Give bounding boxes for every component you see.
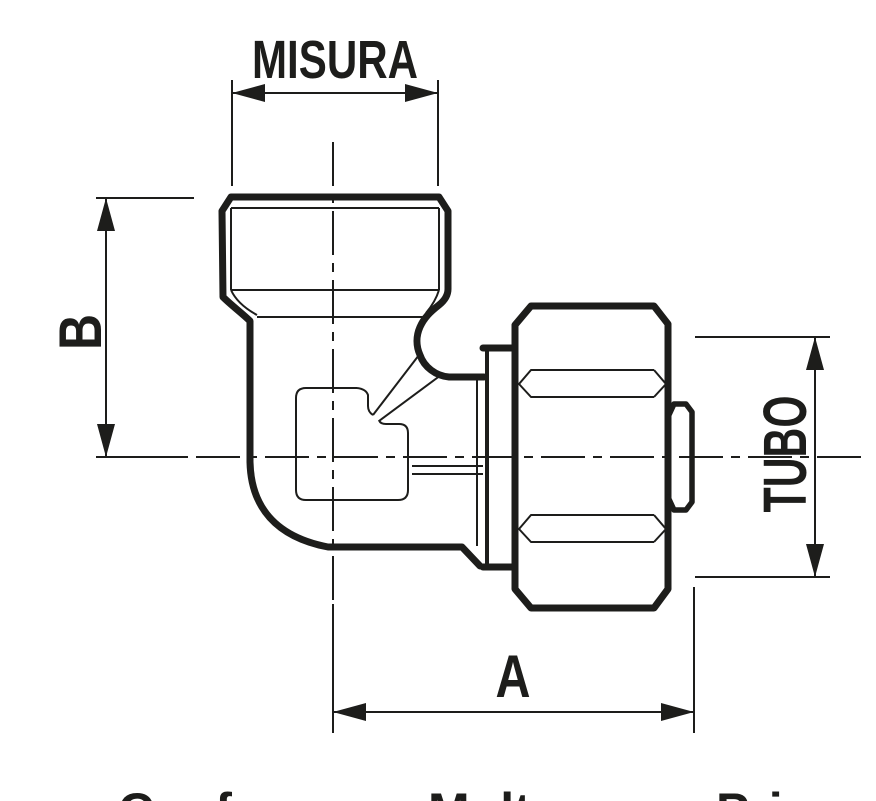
funnel-line-lower [379,375,441,421]
dim-label-misura: MISURA [252,30,418,90]
dimension-misura: MISURA [232,30,438,186]
funnel-line-upper [373,355,419,415]
a-arrow-right-icon [661,703,694,721]
cropped-text-col1: Conf [118,783,232,801]
elbow-body-outline [222,197,484,566]
bore-notch [357,388,373,415]
cropped-text-col2: Mult [428,783,531,801]
dim-label-b: B [47,314,114,350]
nut-facet-bottom [519,515,666,542]
tubo-arrow-up-icon [806,337,824,370]
nut-facet-top [519,370,666,397]
tubo-arrow-down-icon [806,544,824,577]
drawing-canvas: MISURA B TUBO A [0,0,876,801]
dimension-b: B [47,198,194,457]
dim-label-a: A [496,643,531,710]
technical-drawing-svg: MISURA B TUBO A [0,0,876,801]
b-arrow-down-icon [97,424,115,457]
bore-outline [296,388,408,500]
dim-label-tubo: TUBO [751,396,819,513]
bottom-cropped-text-row: Conf Mult Pri [118,783,783,801]
b-arrow-up-icon [97,198,115,231]
centerlines [196,142,868,602]
fitting-outline [222,197,692,608]
cropped-text-col3: Pri [716,783,783,801]
a-arrow-left-icon [333,703,366,721]
